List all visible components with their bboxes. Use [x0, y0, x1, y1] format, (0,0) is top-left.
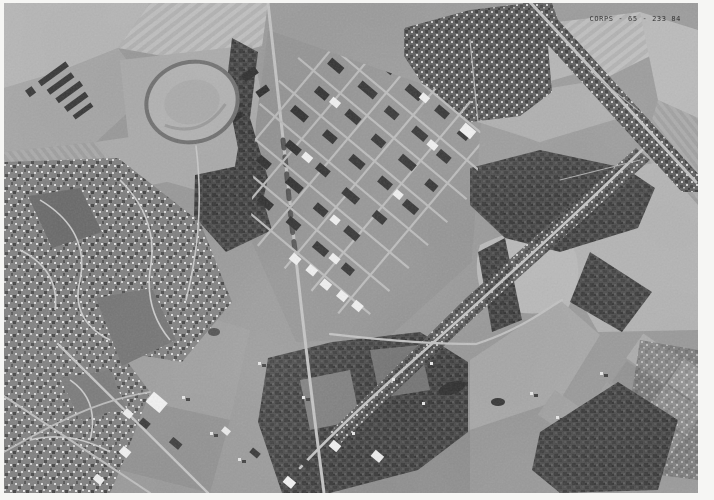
photo-id-text: CORPS - 65 - 233 84	[590, 15, 681, 23]
screenshot-root: CORPS - 65 - 233 84	[0, 0, 714, 500]
grain-overlay	[4, 3, 698, 493]
aerial-photograph: CORPS - 65 - 233 84	[0, 0, 714, 500]
